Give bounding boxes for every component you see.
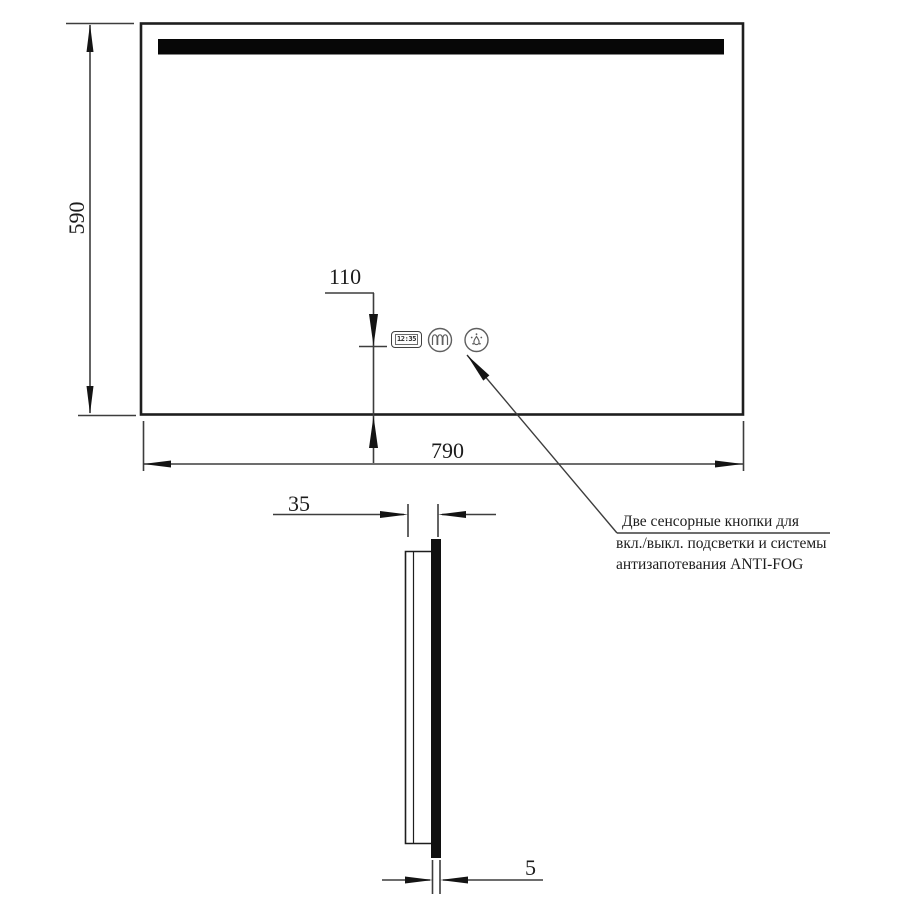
side-view-glass-panel xyxy=(431,539,441,858)
side-view-back-box xyxy=(406,552,432,844)
callout-line-2: вкл./выкл. подсветки и системы xyxy=(616,533,856,555)
dim-label-thickness-5: 5 xyxy=(525,857,536,879)
mirror-front-view xyxy=(141,24,743,415)
arrow-590-down xyxy=(87,386,94,414)
arrow-35-right xyxy=(438,511,466,518)
callout-line-3: антизапотевания ANTI-FOG xyxy=(616,554,856,576)
digital-clock-display: 12:35 xyxy=(391,331,422,348)
dim-label-depth-35: 35 xyxy=(288,493,310,515)
mirror-outline xyxy=(141,24,743,415)
dim-label-height-590: 590 xyxy=(66,202,88,235)
arrow-790-left xyxy=(143,461,171,468)
arrow-35-left xyxy=(380,511,408,518)
arrow-5-right xyxy=(440,877,468,884)
arrow-590-up xyxy=(87,24,94,52)
callout-line-1: Две сенсорные кнопки для xyxy=(616,511,856,533)
arrow-110-up xyxy=(369,416,378,448)
dim-label-offset-110: 110 xyxy=(329,266,361,288)
callout-annotation: Две сенсорные кнопки для вкл./выкл. подс… xyxy=(616,511,856,576)
arrow-5-left xyxy=(405,877,433,884)
led-strip xyxy=(158,39,724,55)
clock-time: 12:35 xyxy=(395,334,418,345)
mirror-side-view xyxy=(406,539,442,858)
mirror-technical-drawing: 12:35 590 790 110 35 5 Две сенсорные кно… xyxy=(0,0,900,900)
dim-label-width-790: 790 xyxy=(431,440,464,462)
arrow-790-right xyxy=(715,461,743,468)
